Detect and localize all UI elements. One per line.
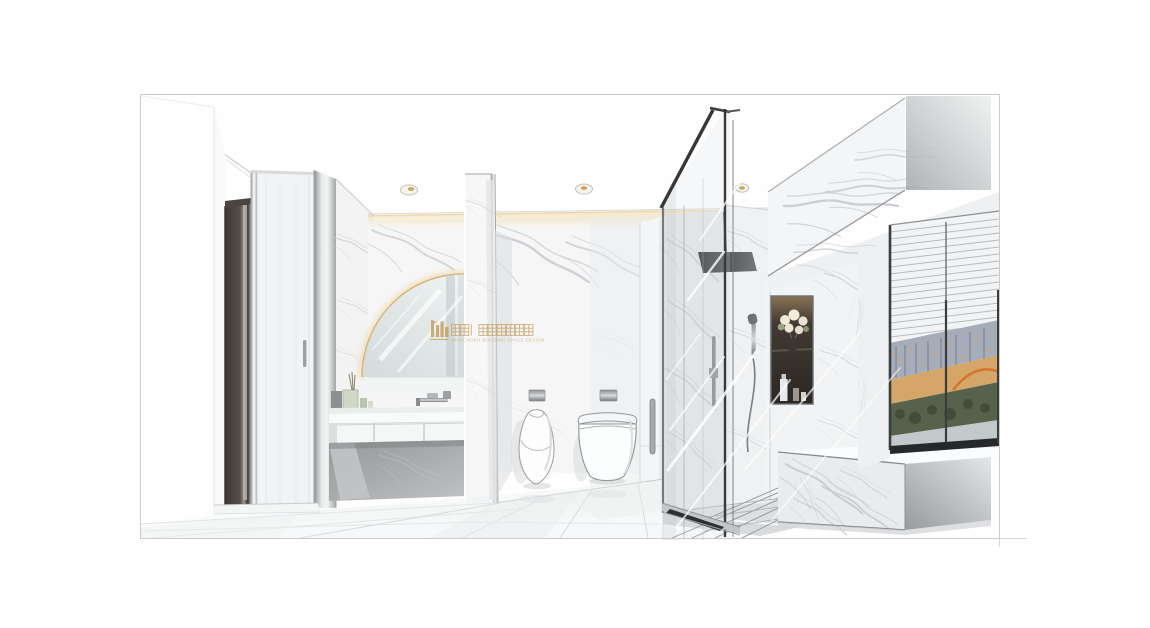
svg-text:MOKCHUEN BUILDING SPACE DESIGN: MOKCHUEN BUILDING SPACE DESIGN — [452, 338, 544, 343]
